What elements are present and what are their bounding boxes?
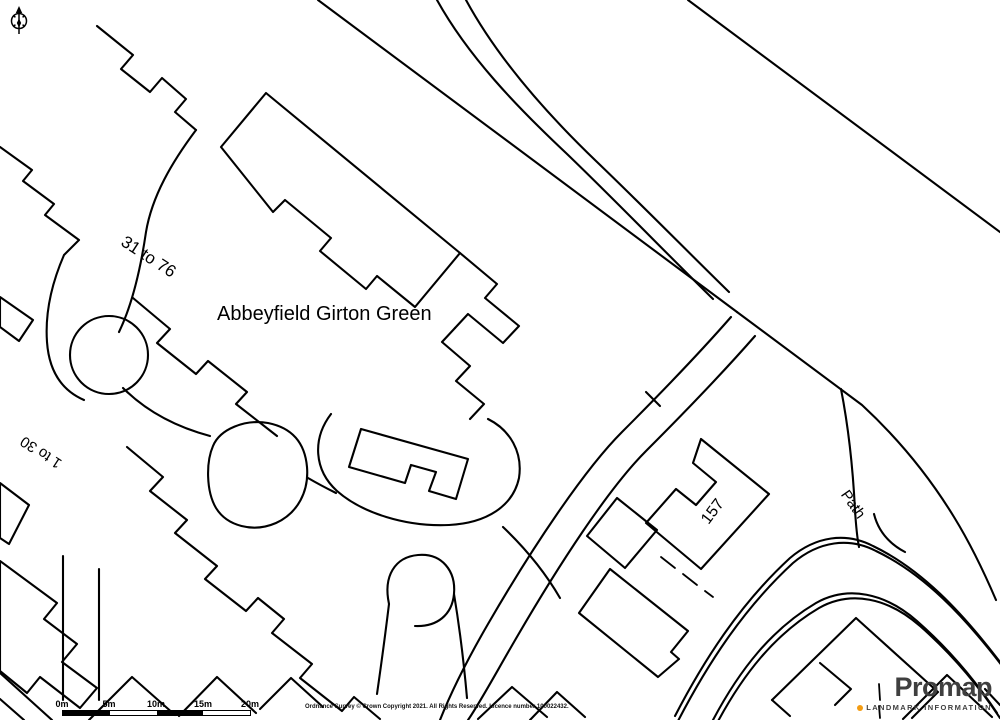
- building-outlines-north-west: [0, 26, 210, 436]
- map-canvas[interactable]: [0, 0, 1000, 720]
- scale-segment: [203, 711, 250, 715]
- promap-map-export: 31 to 76 Abbeyfield Girton Green 1 to 30…: [0, 0, 1000, 720]
- footpath-lines: [841, 389, 905, 552]
- clubhouse-outline: [349, 429, 468, 499]
- scale-bar-ticks: 0m 5m 10m 15m 20m: [62, 699, 262, 709]
- scale-label: 20m: [241, 699, 259, 709]
- stream-lines: [437, 0, 729, 406]
- scale-label: 0m: [55, 699, 68, 709]
- scale-bar: 0m 5m 10m 15m 20m: [62, 699, 262, 717]
- turning-circle: [70, 316, 148, 394]
- landmark-dot-icon: [857, 705, 863, 711]
- scale-segment: [157, 711, 204, 715]
- scale-segment: [110, 711, 157, 715]
- building-outlines-west-terrace: [0, 297, 380, 720]
- promap-logo: Promap LANDMARK INFORMATION: [857, 674, 992, 712]
- north-arrow-icon: [6, 4, 32, 36]
- scale-label: 15m: [194, 699, 212, 709]
- scale-segment: [63, 711, 110, 715]
- promap-tagline-text: LANDMARK INFORMATION: [866, 704, 992, 712]
- scale-bar-segments: [62, 710, 251, 716]
- scale-label: 10m: [147, 699, 165, 709]
- promap-tagline: LANDMARK INFORMATION: [857, 704, 992, 712]
- copyright-attribution: Ordnance Survey © Crown Copyright 2021. …: [305, 704, 535, 710]
- promap-wordmark: Promap: [857, 674, 992, 701]
- building-outlines-north-block: [221, 93, 519, 419]
- map-label-site-name: Abbeyfield Girton Green: [217, 303, 432, 326]
- scale-label: 5m: [102, 699, 115, 709]
